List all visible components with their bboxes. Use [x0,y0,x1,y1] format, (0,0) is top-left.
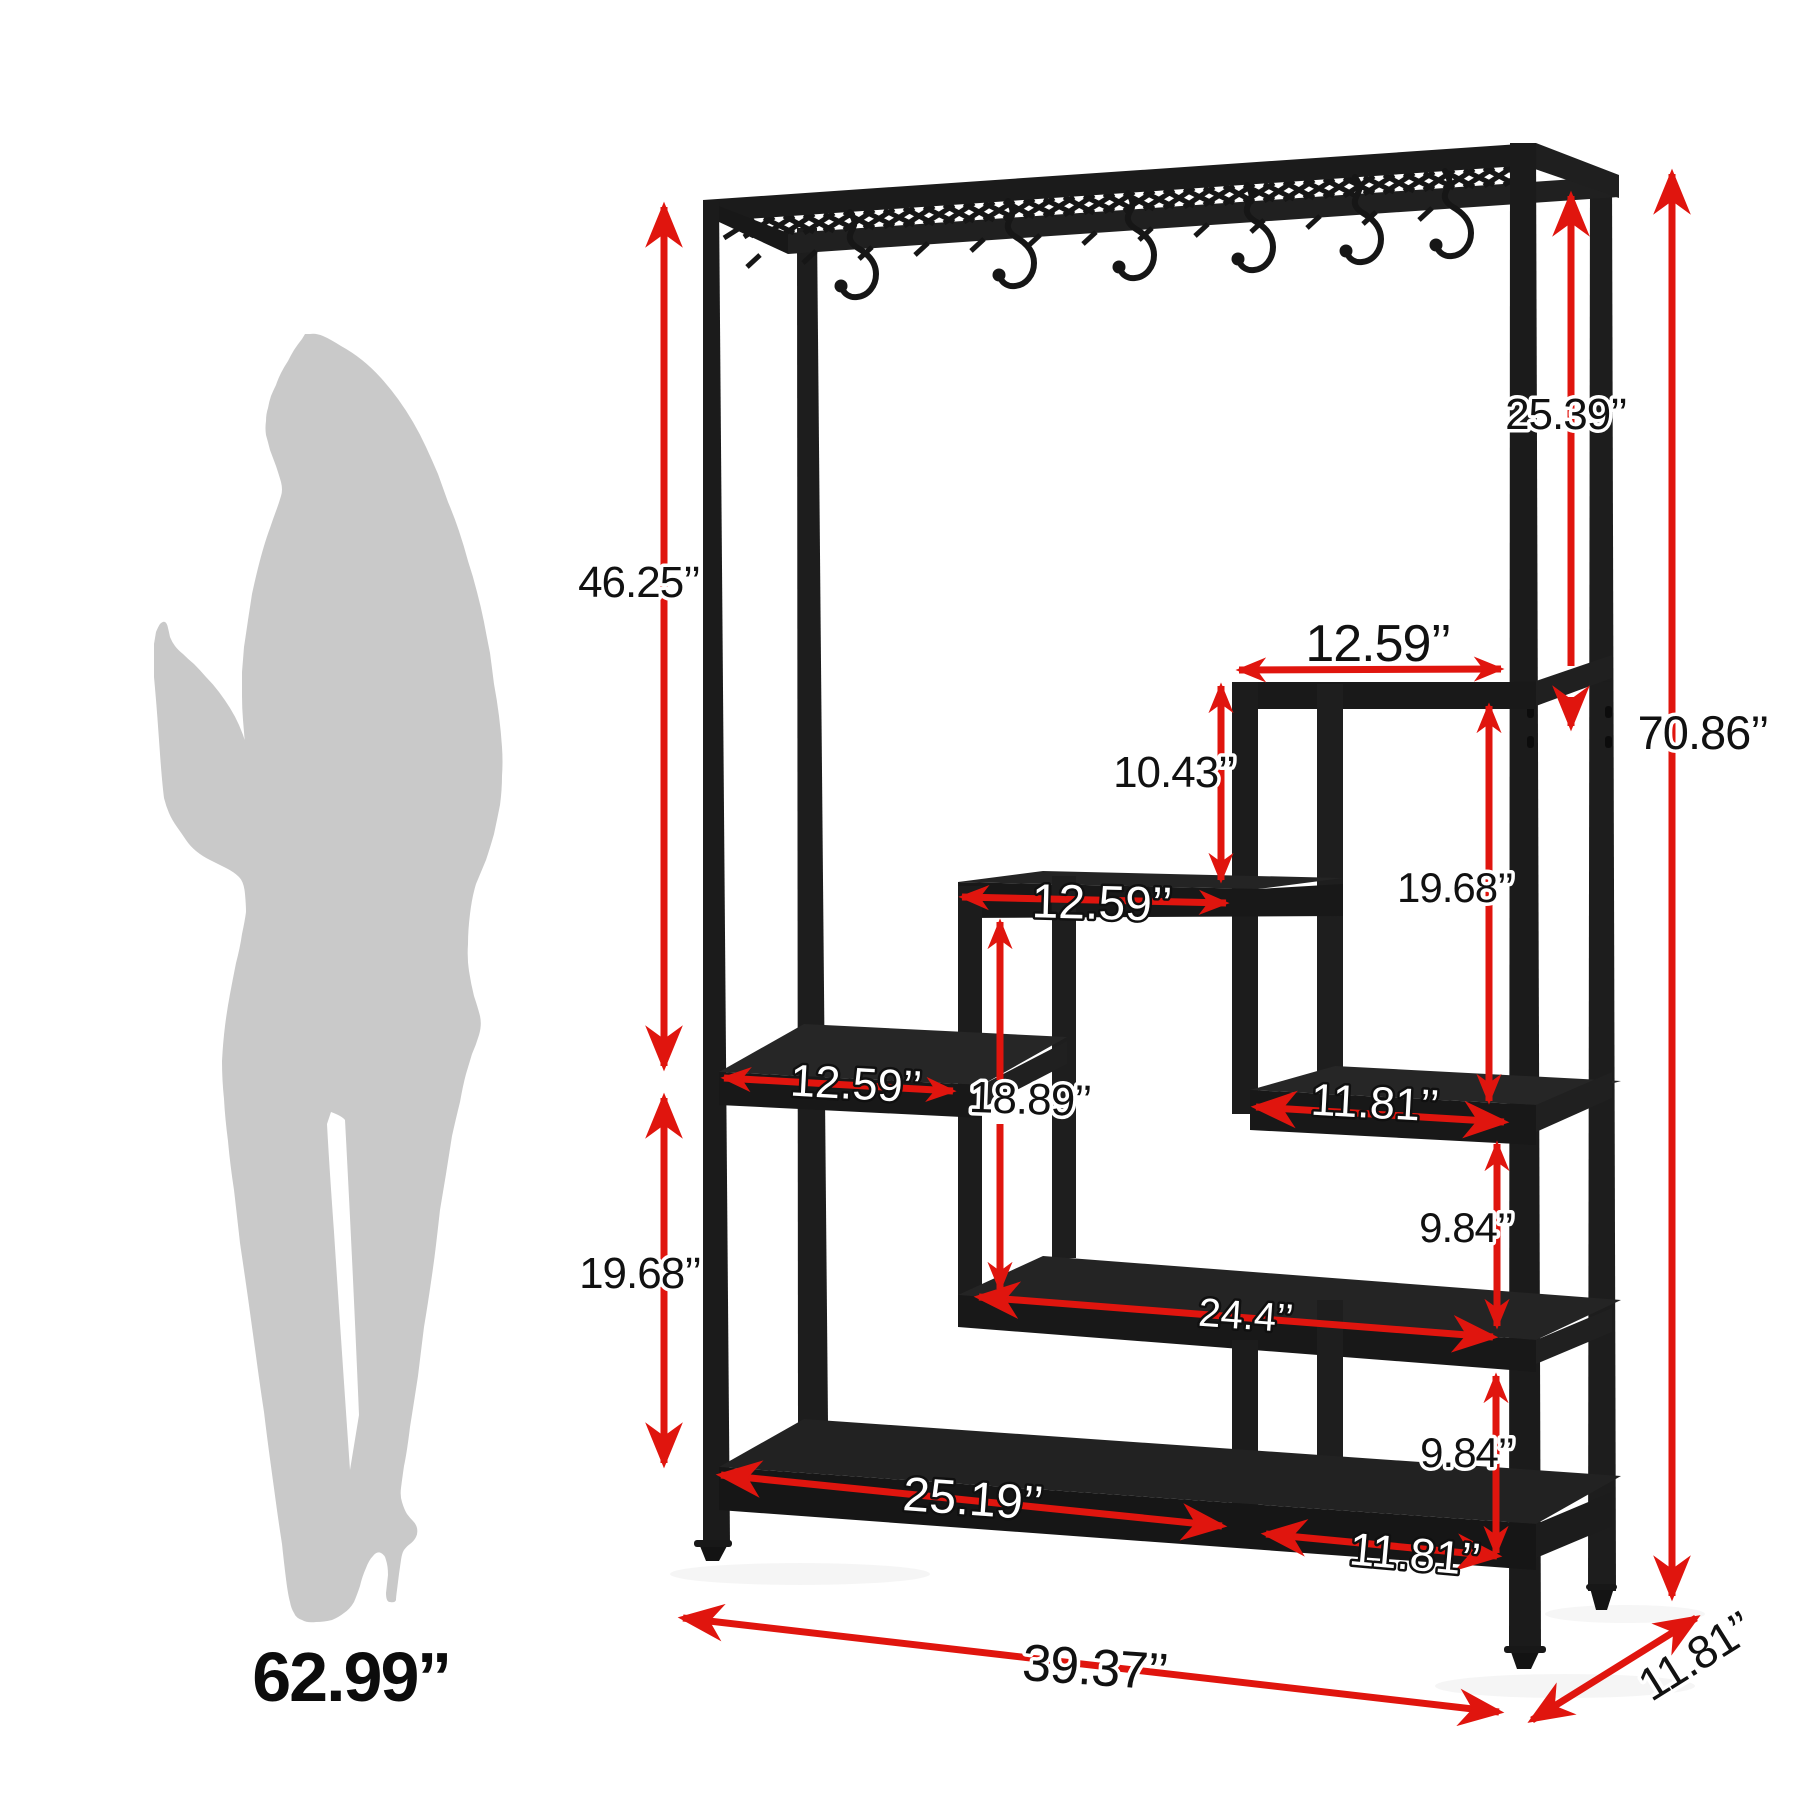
svg-text:39.37’’: 39.37’’ [1020,1634,1169,1702]
svg-text:25.39’’: 25.39’’ [1505,390,1627,439]
svg-text:46.25’’: 46.25’’ [578,558,700,607]
svg-text:18.89’’: 18.89’’ [968,1073,1092,1126]
svg-text:70.86’’: 70.86’’ [1638,706,1769,759]
svg-text:19.68’’: 19.68’’ [579,1249,701,1298]
svg-text:10.43’’: 10.43’’ [1113,748,1235,797]
svg-text:12.59’’: 12.59’’ [1031,875,1173,932]
svg-text:62.99’’: 62.99’’ [252,1638,449,1716]
svg-text:24.4’’: 24.4’’ [1197,1291,1295,1342]
svg-text:25.19’’: 25.19’’ [901,1468,1045,1531]
svg-text:19.68’’: 19.68’’ [1397,864,1513,911]
svg-text:11.81’’: 11.81’’ [1347,1522,1482,1585]
svg-text:11.81’’: 11.81’’ [1310,1074,1441,1132]
svg-text:9.84’’: 9.84’’ [1420,1429,1514,1476]
svg-text:9.84’’: 9.84’’ [1419,1204,1513,1251]
svg-text:12.59’’: 12.59’’ [1305,615,1450,673]
svg-text:12.59’’: 12.59’’ [789,1055,923,1113]
